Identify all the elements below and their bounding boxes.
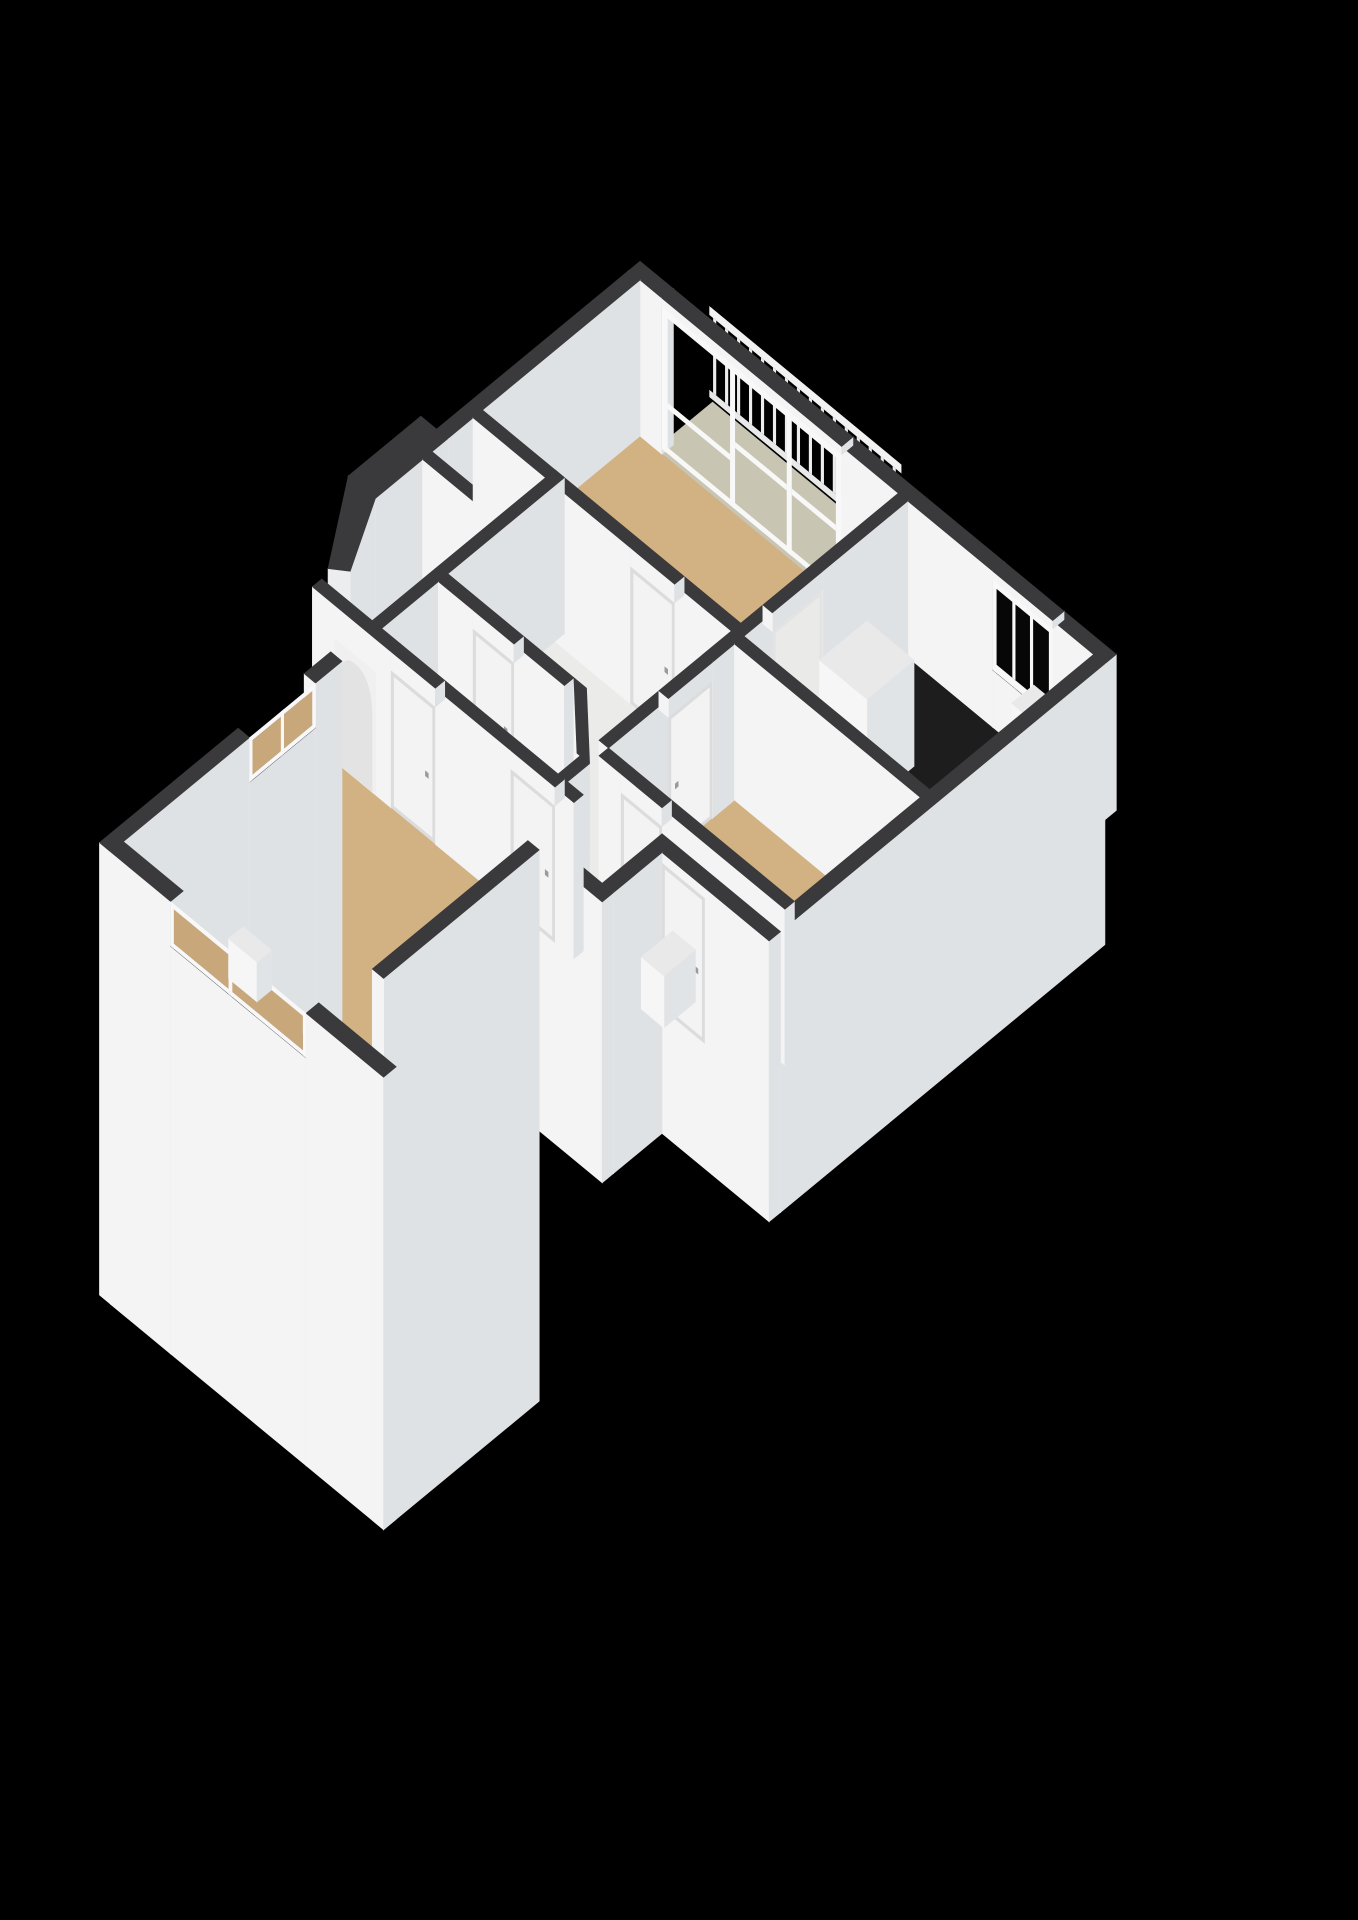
front-window-part-4 xyxy=(303,1011,306,1058)
kitchen-window-part-6 xyxy=(1030,615,1033,695)
front-window-part-3 xyxy=(171,901,174,948)
floorplan-3d-view xyxy=(0,0,1358,1920)
balcony-glazed-door-part-1 xyxy=(662,307,668,454)
balcony-glazed-door-part-4 xyxy=(787,409,792,556)
screenshot-root xyxy=(0,0,1358,1920)
west-facade-low-b-face xyxy=(100,843,111,1305)
balcony-glazed-door-part-3 xyxy=(730,363,735,510)
entry-notch-wall-c-face xyxy=(602,893,613,1183)
front-facade-low-b-face xyxy=(384,1067,397,1530)
kitchen-window-part-5 xyxy=(1012,601,1015,681)
living-north-wall-c-face xyxy=(555,787,574,959)
front-facade-low-b-face xyxy=(306,1013,384,1529)
entry-notch-wall-a-face xyxy=(769,932,780,1222)
west-window-part-3 xyxy=(312,683,315,730)
living-north-wall-c-face xyxy=(574,795,583,959)
west-window-part-5 xyxy=(281,709,284,756)
bedroom-right-south-wall-b-face xyxy=(785,901,795,1065)
kitchen-window-part-3 xyxy=(993,580,997,674)
ne-facade-segment-c-face xyxy=(1105,654,1116,819)
west-window-part-4 xyxy=(249,735,252,782)
front-facade-low-a-face xyxy=(111,852,171,1354)
